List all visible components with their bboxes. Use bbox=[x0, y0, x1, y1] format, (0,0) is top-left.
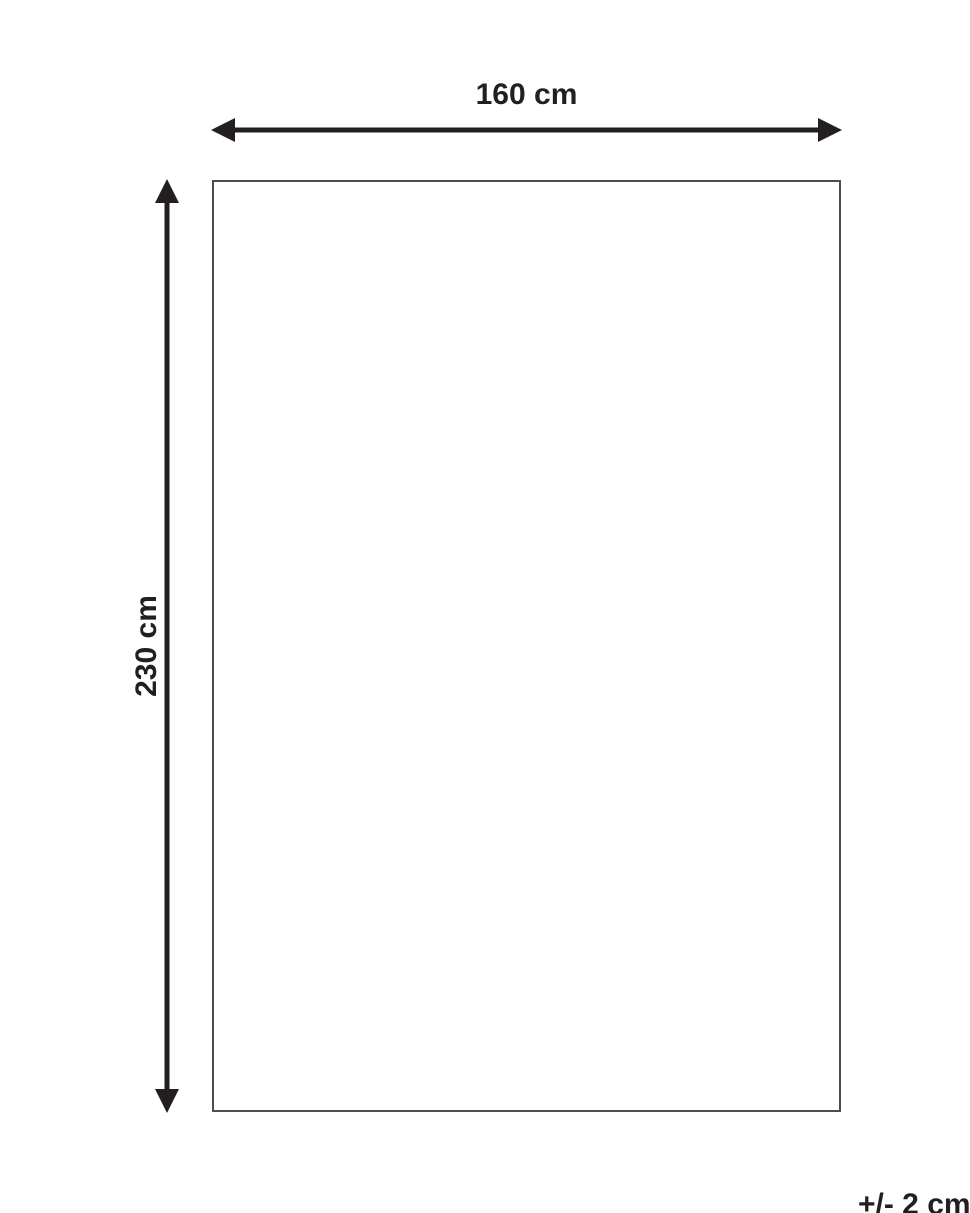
width-dimension-label: 160 cm bbox=[212, 80, 841, 110]
tolerance-label: +/- 2 cm bbox=[858, 1190, 970, 1213]
vertical-double-arrow-icon bbox=[152, 178, 182, 1114]
product-outline-rectangle bbox=[212, 180, 841, 1112]
dimension-diagram: 160 cm 230 cm +/- 2 cm bbox=[0, 0, 970, 1213]
horizontal-double-arrow-icon bbox=[210, 115, 843, 145]
